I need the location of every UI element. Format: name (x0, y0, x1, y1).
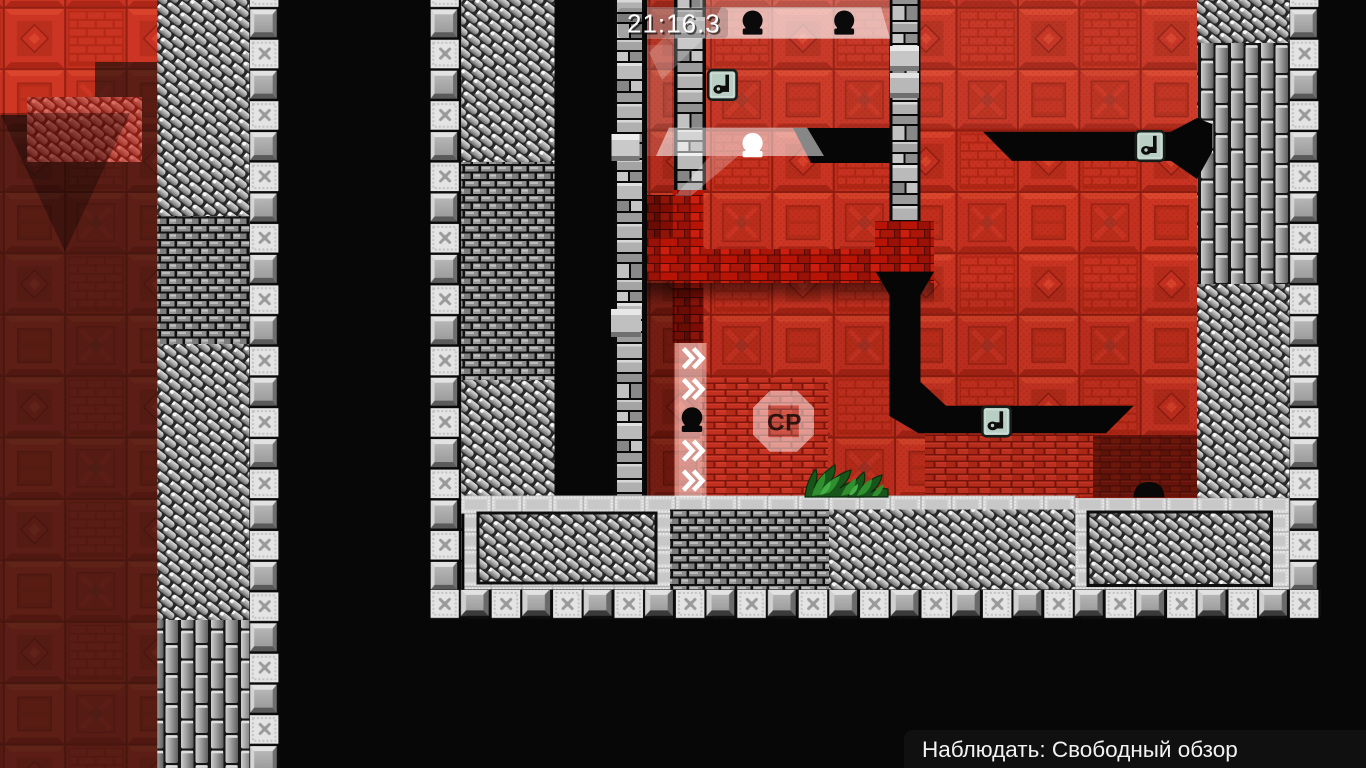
svg-text:CP: CP (767, 409, 802, 436)
svg-text:Наблюдать: Свободный обзор: Наблюдать: Свободный обзор (922, 737, 1238, 762)
svg-text:21:16.3: 21:16.3 (627, 9, 721, 39)
